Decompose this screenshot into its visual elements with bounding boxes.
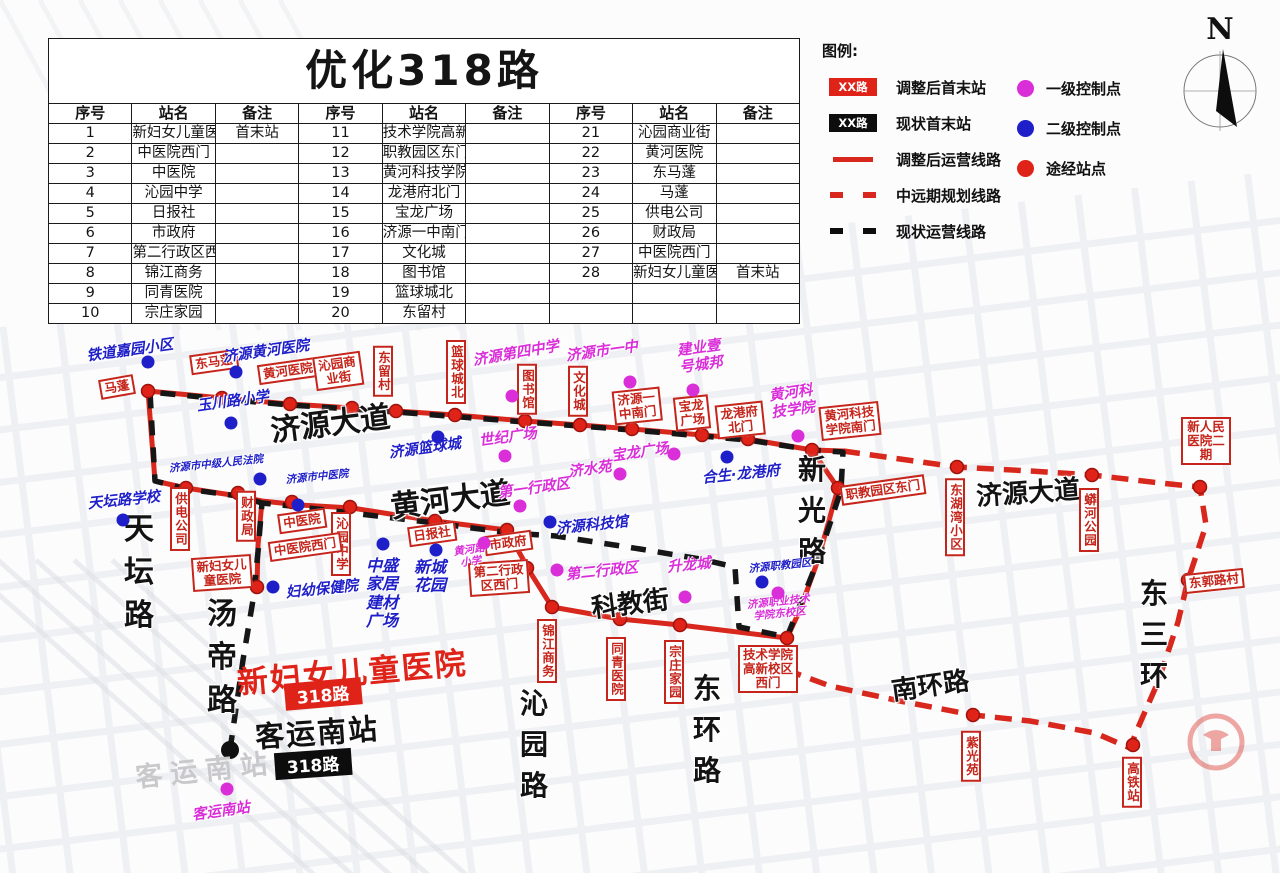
station-number: 16: [299, 224, 382, 244]
station-label: 宝龙 广场: [673, 394, 711, 431]
station-number: 2: [49, 144, 132, 164]
secondary-control-point-dot: [267, 581, 280, 594]
compass-needle-icon: [1175, 47, 1265, 135]
station-name: 济源一中南门: [382, 224, 465, 244]
primary-control-point-label: 客运南站: [191, 800, 251, 825]
secondary-control-point-label: 合生·龙港府: [701, 463, 780, 488]
station-number: 12: [299, 144, 382, 164]
station-label: 东湖湾小区: [945, 478, 965, 556]
column-header: 备注: [215, 104, 298, 124]
secondary-control-point-label: 济源市中医院: [285, 468, 349, 487]
station-list-table: 优化318路序号站名备注序号站名备注序号站名备注1新妇女儿童医院首末站11技术学…: [48, 38, 800, 324]
station-note: [215, 304, 298, 324]
road-label: 汤帝路: [196, 598, 240, 727]
compass-north-letter: N: [1175, 12, 1265, 47]
table-row: 9同青医院19篮球城北: [49, 284, 800, 304]
station-name: [633, 304, 716, 324]
station-number: 8: [49, 264, 132, 284]
station-label: 沁园商 业街: [312, 351, 364, 391]
station-number: 14: [299, 184, 382, 204]
station-label: 宗庄家园: [664, 640, 684, 704]
primary-dot-swatch: [1017, 80, 1034, 97]
station-label: 篮球城北: [446, 340, 466, 404]
station-note: [215, 204, 298, 224]
legend-item: XX路调整后首末站: [822, 69, 1182, 105]
primary-control-point-dot: [506, 390, 519, 403]
station-name: 技术学院高新校区西门: [382, 124, 465, 144]
primary-control-point-label: 济源第四中学: [472, 338, 561, 370]
column-header: 序号: [299, 104, 382, 124]
station-number: 25: [549, 204, 632, 224]
station-label: 龙港府 北门: [715, 401, 766, 440]
primary-control-point-label: 济源市一中: [565, 339, 639, 366]
station-name: 沁园商业街: [633, 124, 716, 144]
legend-point-label: 一级控制点: [1046, 78, 1121, 99]
station-label: 同青医院: [606, 637, 626, 701]
primary-control-point-dot: [624, 376, 637, 389]
station-number: 9: [49, 284, 132, 304]
station-note: [716, 284, 800, 304]
station-label: 紫光苑: [961, 731, 981, 782]
secondary-control-point-label: 玉川路小学: [196, 389, 270, 416]
station-note: 首末站: [716, 264, 800, 284]
secondary-control-point-dot: [117, 514, 130, 527]
station-label: 新人民医院二期: [1181, 417, 1231, 465]
road-label: 东环路: [685, 674, 725, 797]
table-row: 4沁园中学14龙港府北门24马蓬: [49, 184, 800, 204]
station-number: 15: [299, 204, 382, 224]
station-note: [215, 144, 298, 164]
secondary-control-point-dot: [544, 516, 557, 529]
table-row: 1新妇女儿童医院首末站11技术学院高新校区西门21沁园商业街: [49, 124, 800, 144]
primary-control-point-dot: [668, 448, 681, 461]
station-name: 东马蓬: [633, 164, 716, 184]
table-row: 3中医院13黄河科技学院南门23东马蓬: [49, 164, 800, 184]
north-compass: N: [1175, 12, 1265, 139]
station-name: 同青医院: [132, 284, 215, 304]
station-label: 高铁站: [1122, 757, 1142, 808]
secondary-control-point-dot: [254, 473, 267, 486]
current-terminal-badge: 318路: [274, 748, 352, 780]
station-number: 1: [49, 124, 132, 144]
station-label: 技术学院 高新校区 西门: [738, 645, 798, 693]
station-name: 中医院西门: [633, 244, 716, 264]
station-number: 19: [299, 284, 382, 304]
station-name: 宗庄家园: [132, 304, 215, 324]
station-name: 黄河科技学院南门: [382, 164, 465, 184]
station-name: 马蓬: [633, 184, 716, 204]
secondary-control-point-dot: [721, 451, 734, 464]
station-number: 4: [49, 184, 132, 204]
station-name: 锦江商务: [132, 264, 215, 284]
station-note: [215, 164, 298, 184]
station-number: [549, 284, 632, 304]
secondary-control-point-label: 济源科技馆: [555, 514, 629, 538]
station-note: [466, 264, 549, 284]
legend-item-label: 调整后运营线路: [896, 149, 1001, 170]
station-label: 东郭路村: [1183, 568, 1245, 594]
legend-point-label: 二级控制点: [1046, 118, 1121, 139]
station-label: 蟒河公园: [1079, 488, 1099, 552]
legend-point-items: 一级控制点二级控制点途经站点: [1017, 68, 1121, 188]
station-number: [549, 304, 632, 324]
current-terminal-swatch: XX路: [829, 114, 877, 132]
station-name: 图书馆: [382, 264, 465, 284]
station-name: 沁园中学: [132, 184, 215, 204]
legend-point-label: 途经站点: [1046, 158, 1106, 179]
station-note: [716, 144, 800, 164]
station-number: 17: [299, 244, 382, 264]
station-name: 东留村: [382, 304, 465, 324]
station-number: 26: [549, 224, 632, 244]
station-name: 新妇女儿童医院: [633, 264, 716, 284]
station-name: 第二行政区西门: [132, 244, 215, 264]
station-name: 供电公司: [633, 204, 716, 224]
secondary-dot-swatch: [1017, 120, 1034, 137]
road-label: 济源大道: [268, 392, 392, 450]
road-label: 沁园路: [512, 689, 552, 812]
table-row: 8锦江商务18图书馆28新妇女儿童医院首末站: [49, 264, 800, 284]
station-note: [466, 204, 549, 224]
legend-title: 图例:: [822, 40, 1182, 61]
station-label: 黄河科技 学院南门: [818, 401, 881, 441]
station-note: 首末站: [215, 124, 298, 144]
table-row: 10宗庄家园20东留村: [49, 304, 800, 324]
station-number: 6: [49, 224, 132, 244]
station-name: 新妇女儿童医院: [132, 124, 215, 144]
secondary-control-point-dot: [292, 499, 305, 512]
station-number: 23: [549, 164, 632, 184]
secondary-control-point-dot: [225, 417, 238, 430]
station-name: 中医院: [132, 164, 215, 184]
primary-control-point-dot: [514, 500, 527, 513]
station-label: 济源一 中南门: [612, 387, 663, 426]
table-row: 2中医院西门12职教园区东门22黄河医院: [49, 144, 800, 164]
secondary-control-point-label: 铁道嘉园小区: [86, 337, 174, 366]
station-number: 22: [549, 144, 632, 164]
dash-red-line-swatch: [830, 192, 876, 198]
station-note: [716, 244, 800, 264]
station_dot-dot-swatch: [1017, 160, 1034, 177]
dash-black-line-swatch: [830, 228, 876, 234]
station-note: [466, 304, 549, 324]
primary-control-point-label: 第二行政区: [565, 560, 639, 584]
legend-point-item: 二级控制点: [1017, 108, 1121, 148]
secondary-control-point-label: 妇幼保健院: [285, 578, 359, 602]
primary-control-point-dot: [687, 384, 700, 397]
column-header: 站名: [132, 104, 215, 124]
station-name: 财政局: [633, 224, 716, 244]
station-note: [466, 184, 549, 204]
road-label: 科教街: [589, 579, 671, 625]
secondary-control-point-dot: [756, 576, 769, 589]
road-label: 南环路: [889, 660, 971, 707]
station-name: 文化城: [382, 244, 465, 264]
table-row: 7第二行政区西门17文化城27中医院西门: [49, 244, 800, 264]
legend-point-item: 一级控制点: [1017, 68, 1121, 108]
station-name: 篮球城北: [382, 284, 465, 304]
station-number: 20: [299, 304, 382, 324]
primary-control-point-dot: [221, 783, 234, 796]
station-note: [466, 244, 549, 264]
primary-control-point-dot: [679, 591, 692, 604]
road-label: 黄河大道: [388, 468, 512, 526]
column-header: 站名: [633, 104, 716, 124]
station-number: 3: [49, 164, 132, 184]
legend-item: 调整后运营线路: [822, 141, 1182, 177]
station-note: [466, 144, 549, 164]
station-note: [716, 204, 800, 224]
secondary-control-point-label: 天坛路学校: [87, 489, 161, 513]
primary-control-point-label: 宝龙广场: [610, 441, 670, 466]
station-note: [466, 164, 549, 184]
station-note: [716, 224, 800, 244]
station-number: 10: [49, 304, 132, 324]
station-name: 市政府: [132, 224, 215, 244]
column-header: 站名: [382, 104, 465, 124]
station-number: 13: [299, 164, 382, 184]
road-label: 天坛路: [113, 513, 157, 642]
station-label: 锦江商务: [537, 619, 557, 683]
station-name: 日报社: [132, 204, 215, 224]
station-number: 24: [549, 184, 632, 204]
secondary-control-point-label: 济源市中级人民法院: [168, 453, 263, 475]
station-note: [215, 244, 298, 264]
station-name: 职教园区东门: [382, 144, 465, 164]
adjusted-terminal-badge: 318路: [284, 677, 363, 711]
legend-item-label: 现状首末站: [896, 113, 971, 134]
legend-item: 中远期规划线路: [822, 177, 1182, 213]
legend-item-label: 中远期规划线路: [896, 185, 1001, 206]
station-label: 图书馆: [517, 364, 537, 415]
station-label: 马蓬: [98, 374, 136, 400]
primary-control-point-label: 世纪广场: [478, 426, 538, 451]
legend-item-label: 调整后首末站: [896, 77, 986, 98]
table-row: 5日报社15宝龙广场25供电公司: [49, 204, 800, 224]
station-label: 新妇女儿 童医院: [191, 554, 253, 592]
primary-control-point-label: 建业壹 号城邦: [676, 337, 724, 376]
secondary-control-point-dot: [142, 356, 155, 369]
secondary-control-point-dot: [430, 544, 443, 557]
station-number: 21: [549, 124, 632, 144]
legend-line-items: XX路调整后首末站XX路现状首末站调整后运营线路中远期规划线路现状运营线路: [822, 69, 1182, 249]
primary-control-point-dot: [792, 430, 805, 443]
secondary-control-point-dot: [432, 431, 445, 444]
station-note: [215, 224, 298, 244]
legend-item-label: 现状运营线路: [896, 221, 986, 242]
column-header: 备注: [716, 104, 800, 124]
station-note: [466, 224, 549, 244]
station-note: [716, 304, 800, 324]
station-note: [215, 284, 298, 304]
station-note: [466, 124, 549, 144]
column-header: 序号: [49, 104, 132, 124]
primary-control-point-dot: [478, 537, 491, 550]
station-label: 东留村: [373, 346, 393, 397]
station-label: 中医院: [277, 508, 327, 534]
station-label: 文化城: [568, 366, 588, 417]
table-row: 6市政府16济源一中南门26财政局: [49, 224, 800, 244]
primary-control-point-dot: [614, 468, 627, 481]
primary-control-point-dot: [499, 450, 512, 463]
road-label: 济源大道: [975, 469, 1081, 513]
station-name: 龙港府北门: [382, 184, 465, 204]
legend-item: XX路现状首末站: [822, 105, 1182, 141]
column-header: 序号: [549, 104, 632, 124]
route-318-optimization-map: { "title": "优化318路", "compass": "N", "co…: [0, 0, 1280, 873]
legend-point-item: 途经站点: [1017, 148, 1121, 188]
road-label: 东三环: [1132, 579, 1172, 702]
secondary-control-point-label: 新城花园: [408, 559, 452, 596]
station-number: 7: [49, 244, 132, 264]
station-note: [716, 124, 800, 144]
station-note: [716, 164, 800, 184]
station-name: 宝龙广场: [382, 204, 465, 224]
station-number: 5: [49, 204, 132, 224]
station-label: 供电公司: [170, 487, 190, 551]
station-number: 27: [549, 244, 632, 264]
station-label: 黄河医院: [257, 357, 319, 385]
current-terminal-label: 客运南站: [254, 706, 381, 757]
secondary-control-point-dot: [230, 366, 243, 379]
adjusted-terminal-swatch: XX路: [829, 78, 877, 96]
station-note: [716, 184, 800, 204]
secondary-control-point-dot: [377, 538, 390, 551]
primary-control-point-label: 济水苑: [567, 459, 612, 482]
primary-control-point-label: 黄河科 技学院: [768, 382, 816, 421]
column-header: 备注: [466, 104, 549, 124]
primary-control-point-label: 升龙城: [666, 555, 711, 576]
primary-control-point-dot: [772, 587, 785, 600]
station-note: [466, 284, 549, 304]
station-label: 职教园区东门: [840, 474, 927, 506]
station-number: 11: [299, 124, 382, 144]
station-number: 28: [549, 264, 632, 284]
station-number: 18: [299, 264, 382, 284]
station-name: [633, 284, 716, 304]
table-title: 优化318路: [49, 39, 800, 104]
solid-red-line-swatch: [833, 157, 873, 162]
station-note: [215, 184, 298, 204]
station-note: [215, 264, 298, 284]
legend-item: 现状运营线路: [822, 213, 1182, 249]
secondary-control-point-label: 济源篮球城: [388, 436, 462, 463]
secondary-control-point-label: 中盛家居建材广场: [360, 557, 404, 631]
station-name: 中医院西门: [132, 144, 215, 164]
primary-control-point-dot: [551, 564, 564, 577]
station-name: 黄河医院: [633, 144, 716, 164]
map-legend: 图例: XX路调整后首末站XX路现状首末站调整后运营线路中远期规划线路现状运营线…: [822, 40, 1182, 249]
station-label: 财政局: [236, 491, 256, 542]
station-label: 市政府: [483, 530, 533, 556]
